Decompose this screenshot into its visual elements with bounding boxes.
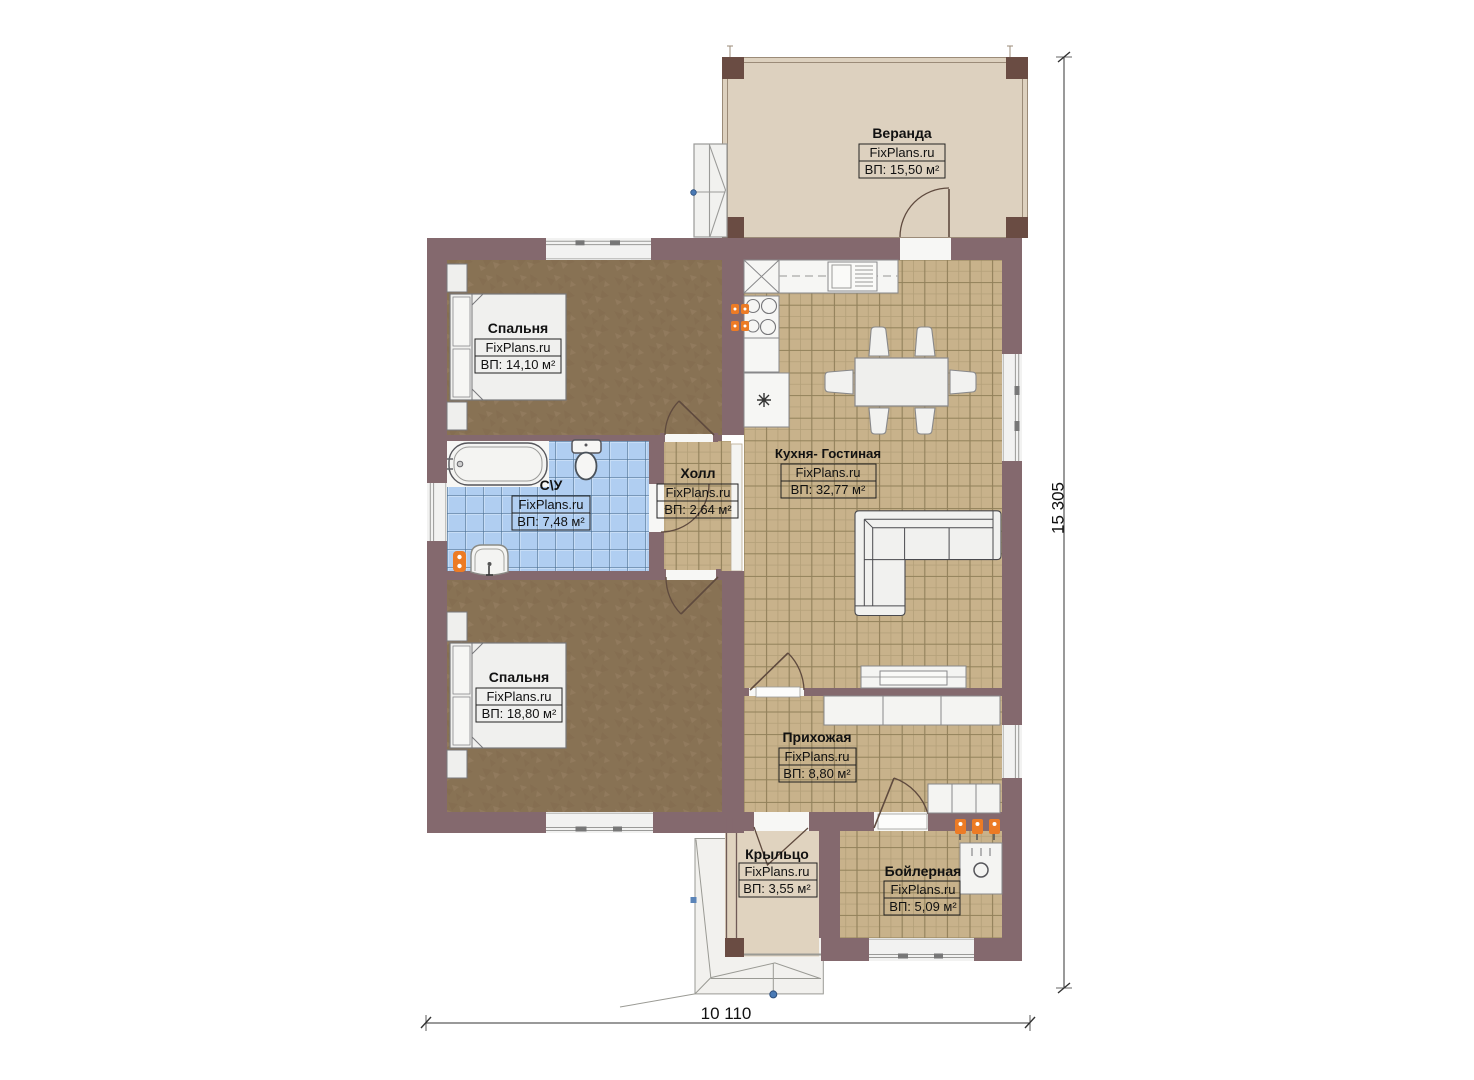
svg-text:FixPlans.ru: FixPlans.ru	[486, 689, 551, 704]
svg-text:FixPlans.ru: FixPlans.ru	[784, 749, 849, 764]
svg-text:Кухня- Гостиная: Кухня- Гостиная	[775, 446, 881, 461]
svg-text:ВП: 15,50 м²: ВП: 15,50 м²	[865, 162, 940, 177]
svg-text:FixPlans.ru: FixPlans.ru	[485, 340, 550, 355]
svg-text:Крыльцо: Крыльцо	[745, 846, 809, 862]
svg-text:Спальня: Спальня	[488, 320, 548, 336]
svg-text:ВП: 3,55 м²: ВП: 3,55 м²	[743, 881, 811, 896]
svg-text:ВП: 5,09 м²: ВП: 5,09 м²	[889, 899, 957, 914]
svg-text:FixPlans.ru: FixPlans.ru	[518, 497, 583, 512]
svg-text:15 305: 15 305	[1049, 482, 1068, 534]
svg-text:ВП: 7,48 м²: ВП: 7,48 м²	[517, 514, 585, 529]
svg-text:ВП: 32,77 м²: ВП: 32,77 м²	[791, 482, 866, 497]
svg-text:С\У: С\У	[540, 477, 563, 493]
svg-text:ВП: 18,80 м²: ВП: 18,80 м²	[482, 706, 557, 721]
svg-text:ВП: 8,80 м²: ВП: 8,80 м²	[783, 766, 851, 781]
svg-text:ВП: 2,64 м²: ВП: 2,64 м²	[664, 502, 732, 517]
svg-text:Холл: Холл	[680, 465, 715, 481]
svg-text:10 110: 10 110	[701, 1004, 752, 1023]
svg-text:Спальня: Спальня	[489, 669, 549, 685]
svg-text:FixPlans.ru: FixPlans.ru	[744, 864, 809, 879]
svg-text:FixPlans.ru: FixPlans.ru	[665, 485, 730, 500]
svg-text:FixPlans.ru: FixPlans.ru	[869, 145, 934, 160]
svg-text:Веранда: Веранда	[872, 125, 932, 141]
svg-text:Прихожая: Прихожая	[782, 729, 851, 745]
svg-text:ВП: 14,10 м²: ВП: 14,10 м²	[481, 357, 556, 372]
svg-text:Бойлерная: Бойлерная	[885, 863, 962, 879]
svg-text:FixPlans.ru: FixPlans.ru	[795, 465, 860, 480]
svg-text:FixPlans.ru: FixPlans.ru	[890, 882, 955, 897]
